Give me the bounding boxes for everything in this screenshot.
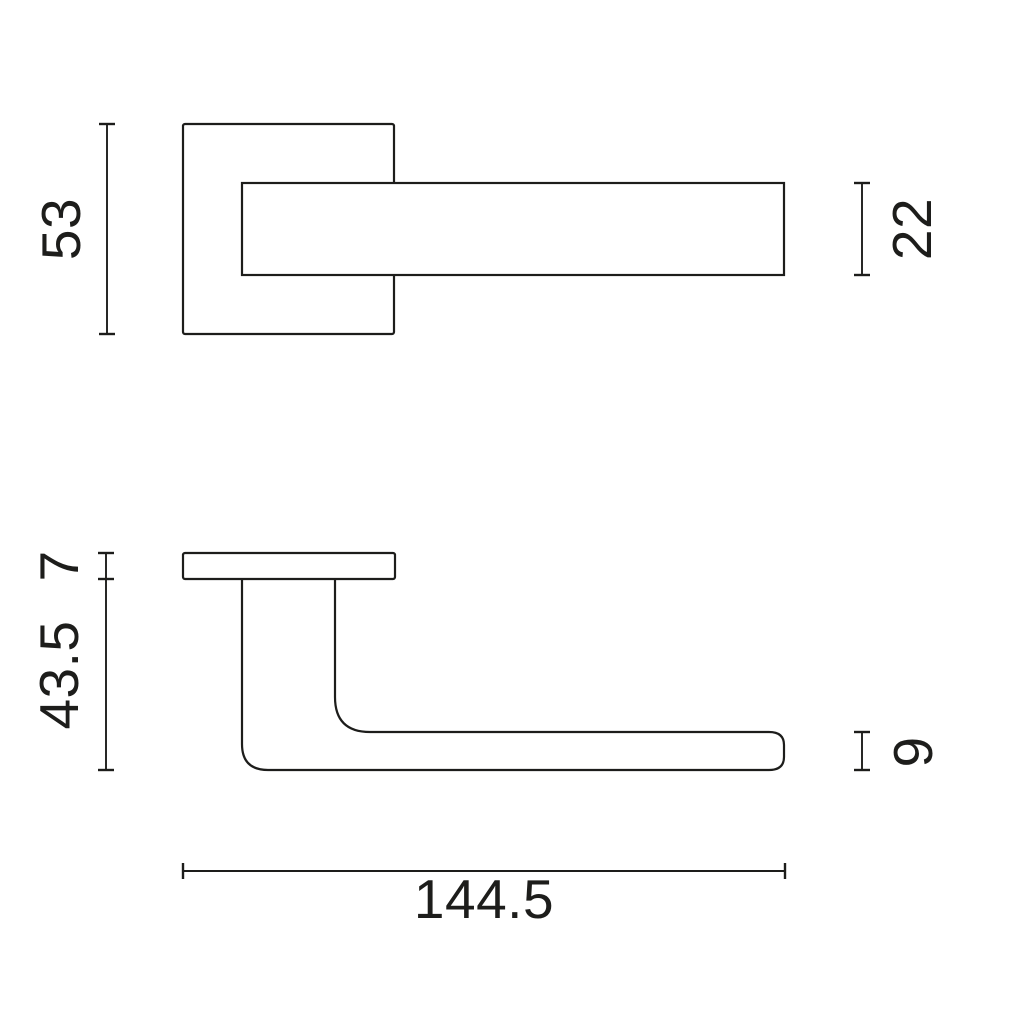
dimension-rose-size: 53 <box>30 124 115 334</box>
dimension-lever-thickness: 9 <box>854 732 944 770</box>
side-view: 7 43.5 9 144.5 <box>28 550 944 930</box>
lever-side-outline <box>242 578 784 770</box>
dim-label-rose-thickness: 7 <box>28 550 90 581</box>
dim-label-lever-thickness: 9 <box>882 736 944 767</box>
dim-label-rose-size: 53 <box>30 198 92 260</box>
dimension-drawing: 53 22 7 43.5 <box>0 0 1030 1030</box>
dimension-rose-thickness-and-projection: 7 43.5 <box>28 550 114 770</box>
dimension-lever-section-height: 22 <box>854 183 943 275</box>
dim-label-handle-projection: 43.5 <box>28 620 90 729</box>
dimension-overall-length: 144.5 <box>183 863 785 930</box>
front-view: 53 22 <box>30 124 943 334</box>
lever-front-outline <box>242 183 784 275</box>
rose-side-outline <box>183 553 395 579</box>
dim-label-overall-length: 144.5 <box>414 868 554 930</box>
drawing-canvas: 53 22 7 43.5 <box>0 0 1030 1030</box>
dim-label-lever-section-height: 22 <box>881 198 943 260</box>
